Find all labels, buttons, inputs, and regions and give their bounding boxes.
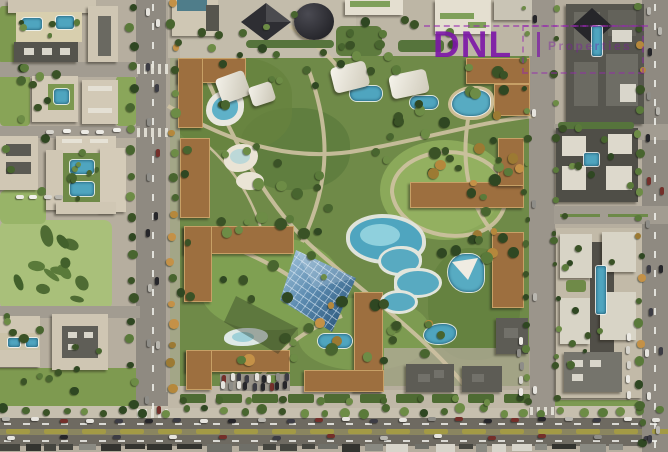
garden-shrubs [11, 273, 25, 291]
green-roof [468, 22, 486, 28]
tree [452, 395, 460, 403]
tree [519, 409, 527, 417]
tree [392, 321, 401, 330]
tree [498, 233, 508, 243]
car [155, 84, 159, 92]
car [511, 418, 519, 422]
tree [129, 400, 139, 410]
car [627, 391, 631, 399]
tree [303, 66, 311, 74]
tree [634, 130, 641, 137]
tree [491, 228, 498, 235]
penthouse [612, 30, 632, 42]
tree [79, 149, 86, 156]
tree [446, 28, 455, 37]
tree [317, 397, 325, 405]
building [406, 364, 454, 392]
garden-shrubs [38, 223, 55, 247]
car [258, 418, 266, 422]
tree [475, 236, 483, 244]
tree [636, 298, 642, 304]
tree [656, 406, 664, 414]
car [565, 417, 573, 421]
median-hedge [196, 429, 220, 434]
tree [635, 380, 643, 388]
median-hedge [348, 429, 372, 434]
tree [609, 259, 615, 265]
tree [522, 86, 527, 91]
street-building [239, 444, 258, 451]
car [221, 381, 225, 389]
car [44, 195, 52, 199]
tree [286, 215, 294, 223]
car [647, 7, 651, 15]
tree [383, 156, 390, 163]
car [520, 362, 524, 370]
tree [467, 188, 476, 197]
street-building [476, 444, 486, 452]
roof-strip [90, 139, 108, 143]
building [602, 232, 636, 272]
tree [74, 366, 80, 372]
tree [290, 354, 298, 362]
building [494, 0, 532, 20]
building [46, 150, 63, 210]
roof-section [434, 370, 444, 378]
tree [175, 39, 182, 46]
car [231, 373, 235, 381]
tree [524, 135, 531, 142]
tree [524, 374, 531, 381]
car [115, 419, 123, 423]
tree [172, 194, 179, 201]
tree [636, 149, 645, 158]
tree [554, 354, 559, 359]
tree [221, 100, 230, 109]
skylight [60, 48, 70, 55]
car [649, 308, 653, 316]
tree [490, 137, 497, 144]
tree [553, 100, 559, 106]
street-building [386, 444, 407, 452]
street-building [263, 444, 276, 450]
tree [523, 271, 529, 277]
car [255, 373, 259, 381]
car [7, 436, 15, 440]
tree [523, 240, 530, 247]
car [157, 406, 161, 414]
street-building [125, 444, 145, 449]
tree [557, 407, 564, 414]
tree [81, 408, 88, 415]
tree [448, 40, 457, 49]
street-building [44, 444, 55, 451]
median-hedge [500, 429, 524, 434]
tree [585, 332, 591, 338]
tree [439, 117, 449, 127]
tree [34, 104, 41, 111]
median-hedge [576, 429, 600, 434]
tree [312, 82, 319, 89]
median-hedge [82, 429, 106, 434]
garden-shrubs [72, 273, 91, 293]
aerial-masterplan-render: DNL Properties [0, 0, 668, 452]
tree [217, 217, 226, 226]
tree [381, 397, 387, 403]
tree [183, 146, 191, 154]
car [626, 375, 630, 383]
car [147, 118, 151, 126]
building [560, 234, 592, 278]
tree [442, 147, 449, 154]
tree [556, 326, 562, 332]
tree [246, 397, 253, 404]
tree [9, 329, 17, 337]
hedge-row [468, 394, 494, 403]
tree [552, 134, 560, 142]
tree [567, 361, 575, 369]
tree [352, 51, 362, 61]
tree [127, 318, 134, 325]
tree [170, 211, 177, 218]
tree [421, 129, 431, 139]
tree [636, 85, 645, 94]
car [658, 27, 662, 35]
tree [580, 408, 589, 417]
roof-strip [98, 16, 111, 56]
median-hedge [234, 429, 258, 434]
car [532, 109, 536, 117]
tree [346, 398, 352, 404]
car [146, 8, 150, 16]
tree [627, 182, 634, 189]
hedge-row [252, 394, 278, 403]
car [113, 435, 121, 439]
tree [640, 67, 646, 73]
car [656, 107, 660, 115]
dome-tower [294, 3, 334, 40]
tree [64, 408, 71, 415]
roof-section [504, 328, 518, 338]
tree [465, 64, 473, 72]
car [627, 333, 631, 341]
courtyard-pool [596, 266, 606, 314]
penthouse [620, 84, 636, 102]
roof-section [418, 374, 430, 382]
tree [359, 409, 369, 419]
tree [489, 174, 501, 186]
car [484, 419, 492, 423]
car [593, 418, 601, 422]
tree [21, 378, 28, 385]
tree [41, 134, 50, 143]
street-building [535, 444, 548, 450]
tree [380, 357, 388, 365]
tree [455, 403, 465, 413]
tree [128, 250, 138, 260]
tree [384, 52, 393, 61]
car [647, 392, 651, 400]
street-building [101, 444, 120, 451]
tree [575, 124, 583, 132]
tree [37, 373, 43, 379]
tree [635, 401, 644, 410]
street-building [436, 444, 455, 452]
street-building [280, 444, 297, 451]
car [519, 388, 523, 396]
tree [583, 349, 587, 353]
tree [470, 180, 477, 187]
car [200, 419, 208, 423]
median-hedge [6, 429, 30, 434]
tree [307, 251, 316, 260]
car [624, 417, 632, 421]
tree [126, 103, 135, 112]
tree [36, 326, 44, 334]
tree [100, 410, 107, 417]
tree [572, 307, 579, 314]
median-hedge [44, 429, 68, 434]
skylight [590, 360, 601, 367]
tree [253, 178, 264, 189]
car [148, 284, 152, 292]
tree [429, 147, 441, 159]
car [81, 130, 89, 134]
tree [315, 171, 324, 180]
tree [575, 162, 582, 169]
tree [208, 44, 216, 52]
car [146, 63, 150, 71]
car [647, 177, 651, 185]
street-building [147, 444, 172, 450]
tree [125, 23, 134, 32]
median-hedge [462, 429, 486, 434]
car [533, 386, 537, 394]
tree [166, 19, 176, 29]
tree [321, 274, 327, 280]
tree [639, 253, 645, 259]
tree [494, 162, 504, 172]
tree [347, 29, 354, 36]
car [656, 426, 660, 434]
tree [598, 408, 608, 418]
skylight [68, 332, 77, 338]
median-hedge [158, 429, 182, 434]
tree [239, 275, 248, 284]
tree [22, 407, 30, 415]
car [517, 349, 521, 357]
apartment-bar [184, 226, 212, 302]
tree [387, 133, 394, 140]
hedge [558, 122, 634, 129]
tree [410, 20, 419, 29]
car [276, 373, 280, 381]
car [16, 195, 24, 199]
tree [181, 170, 189, 178]
street-building [207, 444, 232, 452]
roof-strip [88, 86, 112, 91]
tree [279, 408, 286, 415]
tree [324, 204, 333, 213]
tree [569, 340, 576, 347]
car [594, 435, 602, 439]
tree [636, 188, 644, 196]
tree [336, 296, 348, 308]
tree [501, 410, 508, 417]
tree [131, 378, 139, 386]
car [646, 134, 650, 142]
tree [95, 167, 99, 171]
tree [446, 155, 454, 163]
tree [242, 408, 249, 415]
tree [304, 323, 314, 333]
car [219, 435, 227, 439]
tree [508, 153, 518, 163]
green-roof [350, 1, 390, 7]
tree [635, 215, 641, 221]
tree [420, 349, 429, 358]
street-building [177, 444, 203, 449]
tree [166, 258, 174, 266]
tree [508, 247, 519, 258]
tree [126, 145, 135, 154]
tree [138, 409, 146, 417]
car [626, 346, 630, 354]
tree [314, 228, 321, 235]
car [370, 419, 378, 423]
tree [474, 143, 485, 154]
tree [38, 187, 46, 195]
tree [562, 213, 568, 219]
car [29, 195, 37, 199]
tree [125, 334, 134, 343]
tree [282, 292, 293, 303]
tree [127, 362, 133, 368]
skylight [42, 48, 52, 55]
tree [301, 409, 309, 417]
roof-strip [62, 139, 82, 143]
car [156, 341, 160, 349]
skylight [84, 332, 93, 338]
tree [257, 404, 267, 414]
tree [71, 178, 75, 182]
car [145, 396, 149, 404]
tree [559, 125, 566, 132]
tree [96, 348, 102, 354]
tree [525, 398, 532, 405]
tree [638, 439, 646, 447]
tree [394, 118, 402, 126]
tree [375, 40, 385, 50]
tree [256, 212, 267, 223]
sail-pavilion [247, 81, 276, 107]
apartment-bar [178, 58, 203, 128]
building [0, 350, 40, 367]
tree [640, 419, 646, 425]
tree [575, 245, 582, 252]
tree [239, 29, 247, 37]
car [270, 383, 274, 391]
skylight [24, 48, 34, 55]
penthouse [562, 166, 586, 190]
car [434, 434, 442, 438]
street-building [342, 444, 360, 452]
tree [361, 17, 371, 27]
car [538, 434, 546, 438]
tree [171, 108, 181, 118]
tree [484, 399, 491, 406]
tree [523, 294, 529, 300]
car [648, 48, 652, 56]
tree [401, 16, 409, 24]
tree [36, 72, 44, 80]
tree [169, 173, 178, 182]
tree [328, 302, 334, 308]
tree [20, 24, 27, 31]
tree [220, 407, 228, 415]
car [533, 15, 537, 23]
tree [382, 404, 390, 412]
car [342, 417, 350, 421]
pool [56, 16, 74, 29]
garden [566, 280, 586, 292]
car [519, 376, 523, 384]
tree [298, 228, 310, 240]
tree [169, 319, 179, 329]
tree [244, 219, 250, 225]
tree [636, 106, 644, 114]
tree [523, 322, 529, 328]
street-building [59, 444, 72, 450]
tree [162, 410, 170, 418]
tree [493, 111, 502, 120]
tree [363, 352, 373, 362]
car [380, 436, 388, 440]
tree [171, 66, 179, 74]
tree [168, 384, 177, 393]
tree [17, 76, 26, 85]
tree [522, 345, 530, 353]
tree [237, 356, 245, 364]
tree [263, 24, 269, 30]
green-roof [440, 13, 474, 19]
tree [128, 277, 135, 284]
car [228, 419, 236, 423]
tree [400, 407, 409, 416]
tree [437, 331, 445, 339]
tree [588, 171, 595, 178]
tree [291, 11, 298, 18]
tree [185, 239, 192, 246]
tree [130, 84, 139, 93]
tree [126, 192, 135, 201]
tree [635, 356, 645, 366]
tree [525, 31, 530, 36]
street-building [365, 444, 382, 451]
tree [525, 162, 529, 166]
tree [127, 125, 135, 133]
car [237, 381, 241, 389]
tree [315, 318, 324, 327]
street-building [302, 444, 315, 449]
tree [553, 197, 559, 203]
tree [180, 397, 187, 404]
tree [129, 62, 137, 70]
car [273, 436, 281, 440]
tree [168, 233, 175, 240]
tree [70, 387, 79, 396]
street-building [459, 444, 473, 449]
